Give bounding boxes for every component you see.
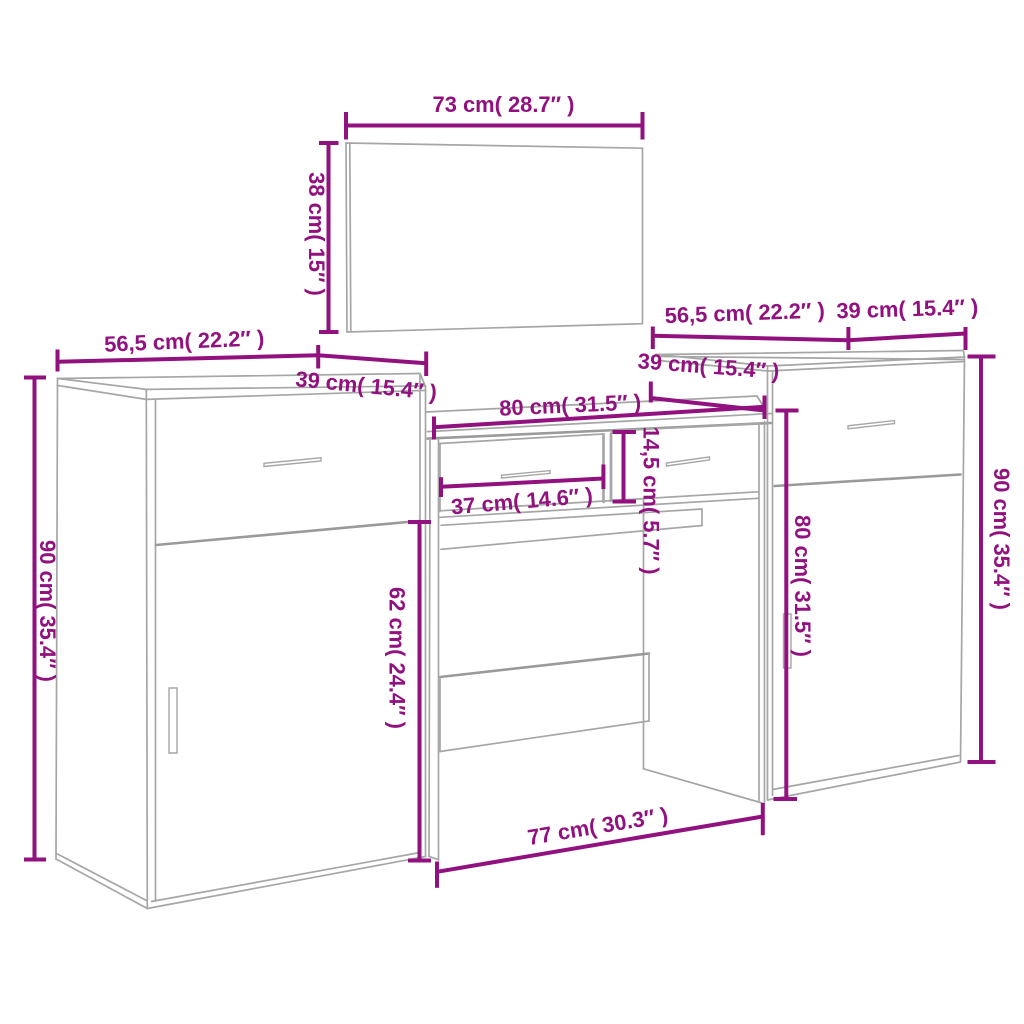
svg-text:38 cm( 15″ ): 38 cm( 15″ )	[304, 172, 329, 296]
svg-text:73 cm( 28.7″ ): 73 cm( 28.7″ )	[433, 92, 575, 117]
svg-text:90 cm( 35.4″ ): 90 cm( 35.4″ )	[989, 468, 1014, 610]
svg-text:14,5 cm( 5.7″ ): 14,5 cm( 5.7″ )	[639, 427, 664, 575]
svg-text:80 cm( 31.5″ ): 80 cm( 31.5″ )	[790, 515, 815, 657]
svg-text:39 cm( 15.4″ ): 39 cm( 15.4″ )	[836, 294, 979, 323]
svg-text:62 cm( 24.4″ ): 62 cm( 24.4″ )	[384, 587, 409, 729]
svg-text:90 cm( 35.4″ ): 90 cm( 35.4″ )	[35, 540, 60, 682]
